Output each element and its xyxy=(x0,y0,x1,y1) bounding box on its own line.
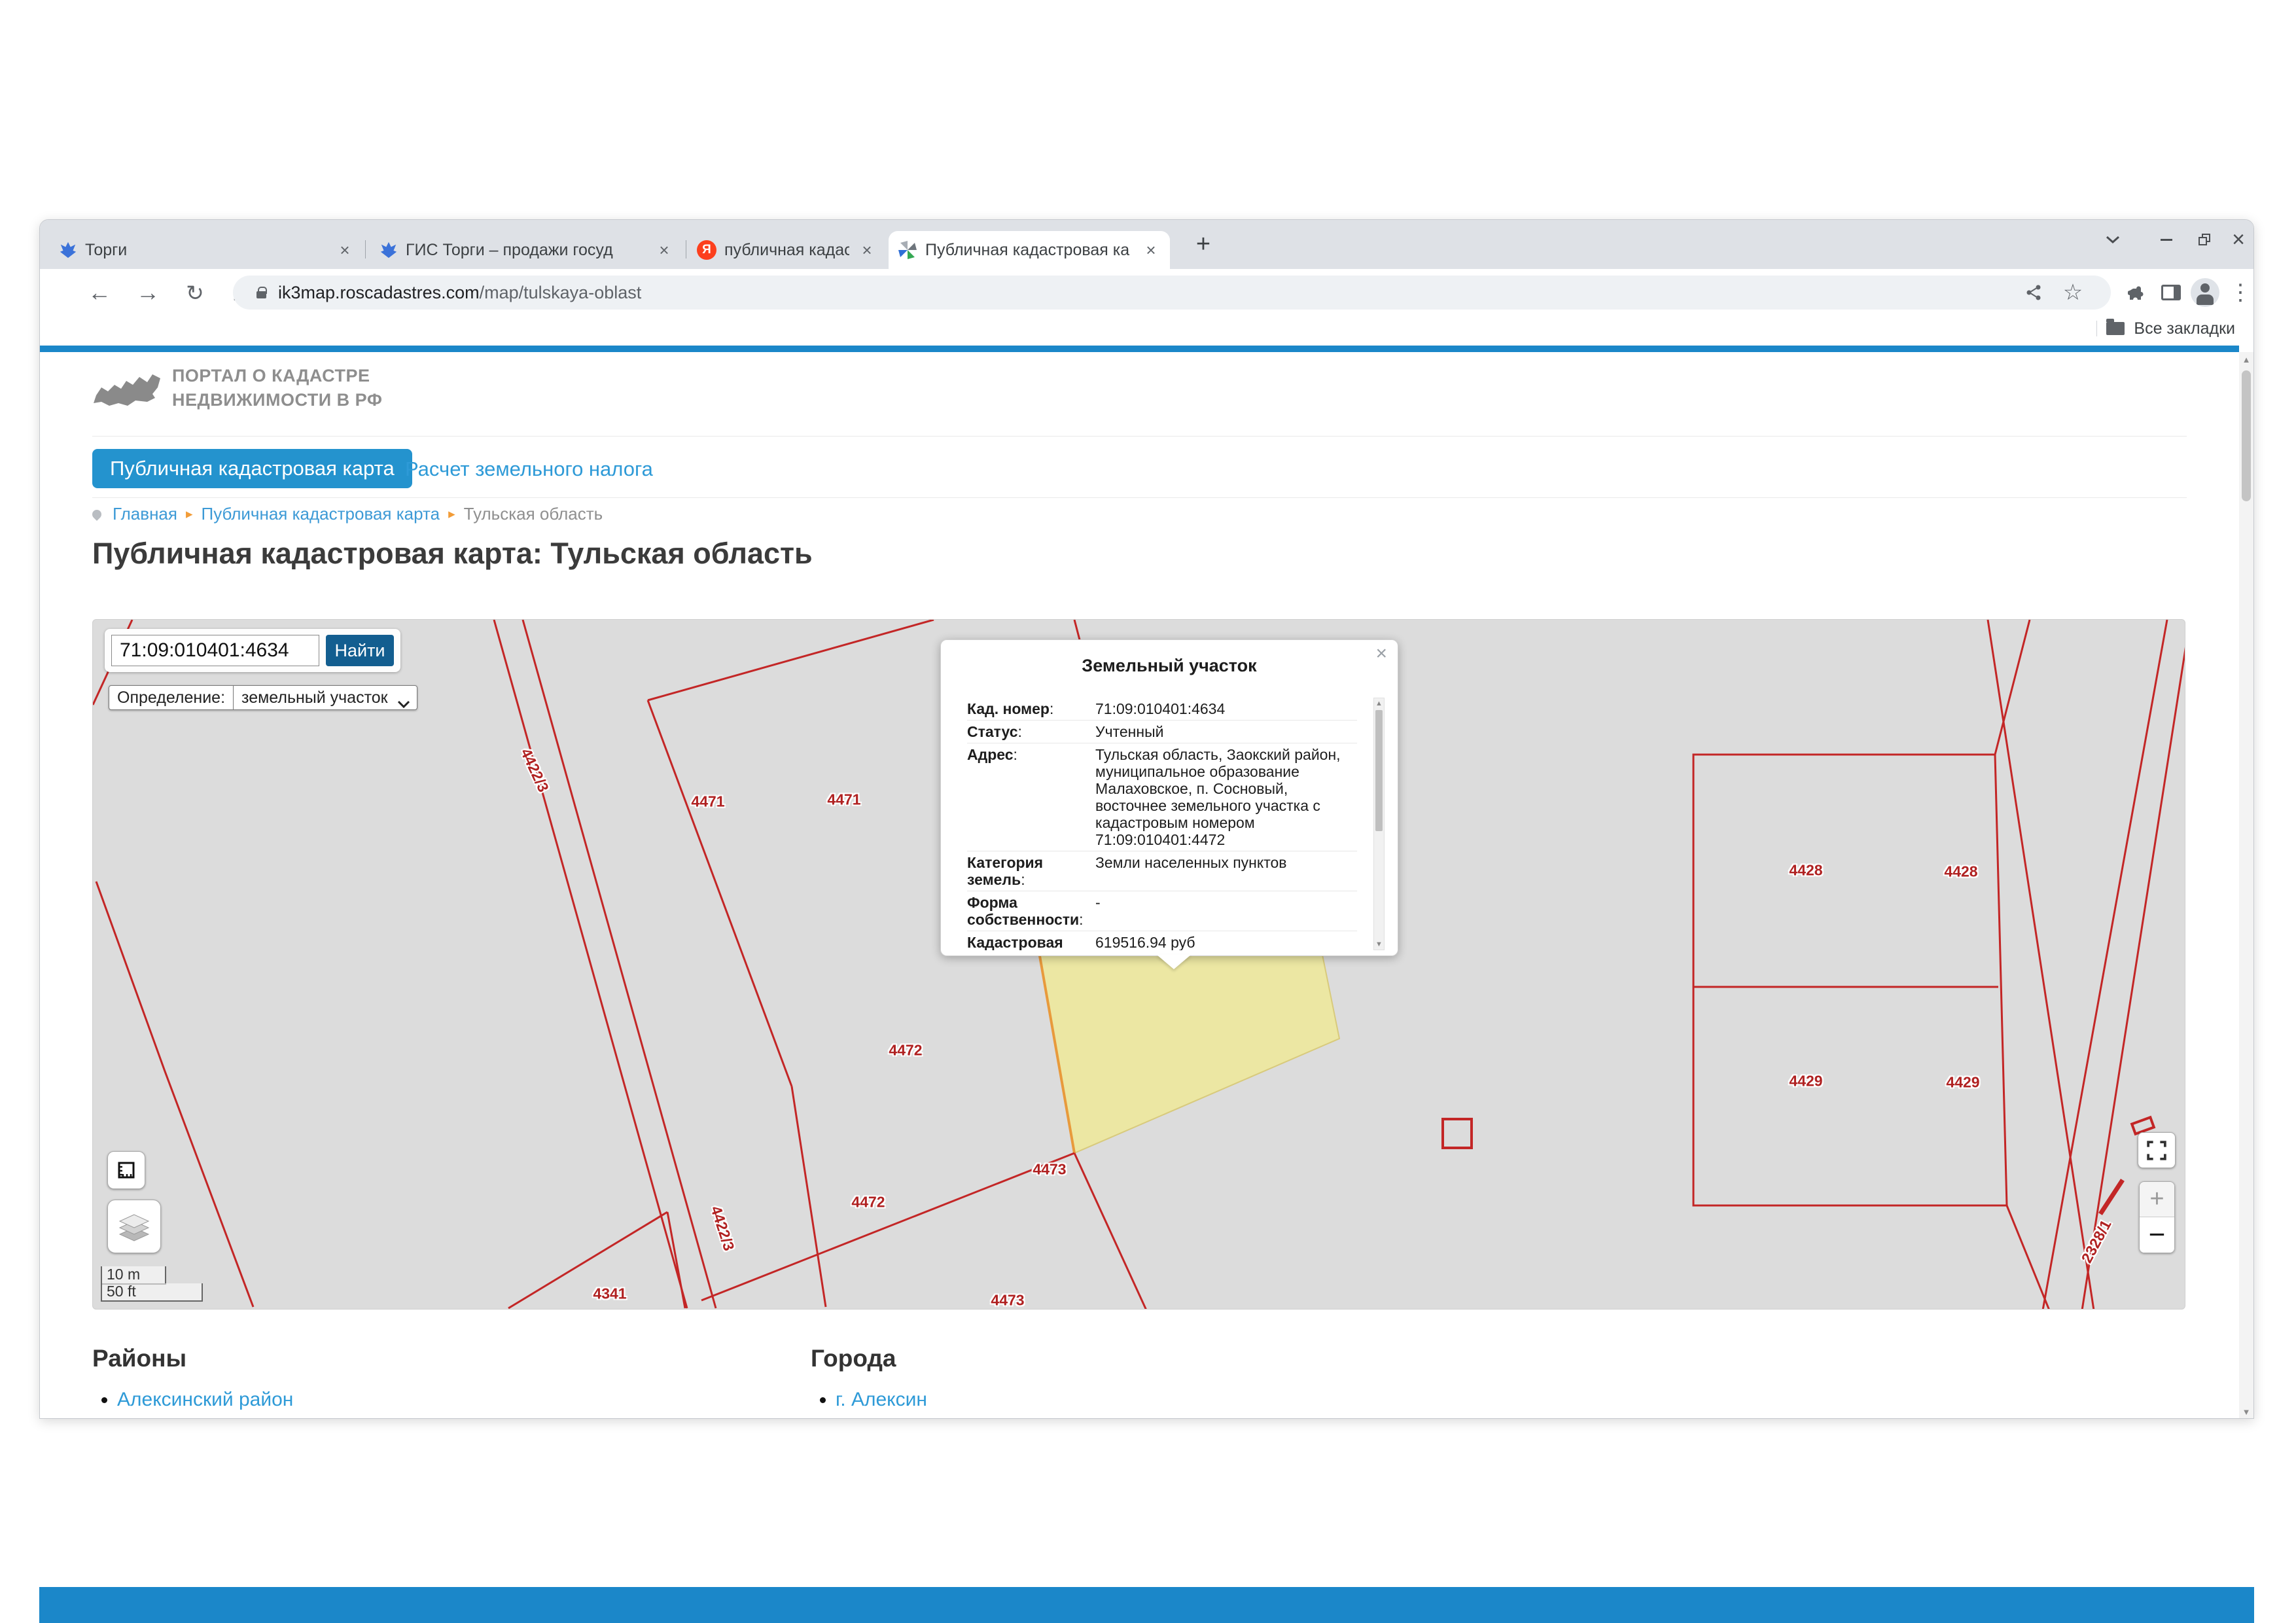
popup-row: Кад. номер 71:09:010401:4634 xyxy=(967,698,1357,721)
cadastral-number-input[interactable] xyxy=(111,635,319,666)
bottom-blue-bar xyxy=(39,1587,2254,1623)
breadcrumb-home[interactable]: Главная xyxy=(113,504,177,524)
address-bar[interactable]: ik3map.roscadastres.com/map/tulskaya-obl… xyxy=(233,276,2111,310)
zoom-in-button[interactable]: + xyxy=(2140,1182,2174,1217)
districts-section: Районы Алексинский район Арсеньевский ра… xyxy=(92,1345,304,1419)
tab-gis-torgi[interactable]: ГИС Торги – продажи госуд × xyxy=(370,231,683,269)
tab-separator xyxy=(686,240,686,259)
list-item: г. Богородицк xyxy=(836,1417,957,1419)
parcel-label: 4341 xyxy=(593,1285,626,1303)
scale-metric: 10 m xyxy=(101,1266,166,1285)
popup-title: Земельный участок xyxy=(941,656,1398,676)
districts-title: Районы xyxy=(92,1345,304,1372)
scroll-up-icon: ▲ xyxy=(1374,700,1384,707)
popup-row: Категория земель Земли населенных пункто… xyxy=(967,851,1357,891)
district-link[interactable]: Алексинский район xyxy=(117,1389,293,1410)
list-item: Арсеньевский район xyxy=(117,1417,304,1419)
parcel-label: 4428 xyxy=(1789,862,1822,880)
window-minimize-button[interactable] xyxy=(2153,226,2180,253)
popup-row: Кадастровая стоимость 619516.94 руб xyxy=(967,931,1357,950)
parcel-label: 4473 xyxy=(991,1292,1024,1310)
bookmarks-bar: Все закладки xyxy=(40,316,2253,341)
parcel-label: 4429 xyxy=(1789,1073,1822,1090)
browser-menu-dots-icon[interactable]: ⋮ xyxy=(2224,276,2254,310)
nav-link-land-tax[interactable]: Расчет земельного налога xyxy=(405,457,653,481)
popup-row: Форма собственности - xyxy=(967,891,1357,931)
scroll-down-icon: ▼ xyxy=(1374,940,1384,948)
site-logo-text: ПОРТАЛ О КАДАСТРЕ НЕДВИЖИМОСТИ В РФ xyxy=(172,364,382,412)
lock-icon xyxy=(256,291,266,298)
map-scale-bar: 10 m 50 ft xyxy=(101,1266,203,1302)
tab-separator xyxy=(365,240,366,259)
divider xyxy=(2096,321,2097,336)
breadcrumb: Главная ▸ Публичная кадастровая карта ▸ … xyxy=(92,504,603,524)
page-viewport: ПОРТАЛ О КАДАСТРЕ НЕДВИЖИМОСТИ В РФ Публ… xyxy=(40,352,2254,1419)
gerb-favicon-icon xyxy=(59,241,77,259)
bookmarks-folder-icon xyxy=(2106,322,2125,335)
yandex-favicon-icon: Я xyxy=(697,240,716,260)
find-button[interactable]: Найти xyxy=(326,635,394,666)
all-bookmarks-button[interactable]: Все закладки xyxy=(2134,319,2235,338)
tab-yandex-search[interactable]: Я публичная кадастровая ка × xyxy=(688,231,886,269)
list-item: г. Алексин xyxy=(836,1387,957,1413)
breadcrumb-cadastre-map[interactable]: Публичная кадастровая карта xyxy=(202,504,440,524)
window-restore-button[interactable] xyxy=(2191,226,2217,253)
popup-row: Адрес Тульская область, Заокский район, … xyxy=(967,743,1357,851)
profile-avatar[interactable] xyxy=(2189,276,2221,310)
window-menu-chevron-icon[interactable] xyxy=(2100,226,2126,253)
scroll-up-icon: ▲ xyxy=(2239,355,2253,365)
tab-torgi[interactable]: Торги × xyxy=(50,231,364,269)
tab-close-icon[interactable]: × xyxy=(857,240,877,260)
parcel-label: 4428 xyxy=(1944,863,1977,881)
parcel-label: 4472 xyxy=(889,1042,922,1060)
tab-title: публичная кадастровая ка xyxy=(724,241,849,260)
zoom-control: + − xyxy=(2139,1181,2175,1253)
chevron-down-icon xyxy=(397,694,410,713)
zoom-out-button[interactable]: − xyxy=(2140,1217,2174,1253)
page-scrollbar[interactable]: ▲ ▼ xyxy=(2239,352,2253,1419)
popup-content[interactable]: Кад. номер 71:09:010401:4634 Статус Учте… xyxy=(967,698,1357,950)
scroll-thumb xyxy=(2242,370,2251,501)
tab-strip: Торги × ГИС Торги – продажи госуд × Я пу… xyxy=(40,220,2253,269)
parcel-label: 4471 xyxy=(691,793,724,811)
tab-title: Публичная кадастровая ка xyxy=(925,241,1133,260)
back-icon[interactable]: ← xyxy=(83,269,116,316)
url-text: ik3map.roscadastres.com/map/tulskaya-obl… xyxy=(278,283,641,303)
nav-tab-cadastre-map[interactable]: Публичная кадастровая карта xyxy=(92,449,412,488)
browser-window: Торги × ГИС Торги – продажи госуд × Я пу… xyxy=(39,219,2254,1419)
popup-tail xyxy=(1157,955,1191,969)
gerb-favicon-icon xyxy=(380,241,398,259)
layers-button[interactable] xyxy=(107,1200,161,1253)
tab-title: ГИС Торги – продажи госуд xyxy=(406,241,646,260)
rosreestr-favicon-icon xyxy=(898,240,917,260)
measure-tool-button[interactable] xyxy=(107,1151,145,1189)
definition-select[interactable]: земельный участок xyxy=(233,686,417,709)
location-pin-icon xyxy=(90,508,103,521)
browser-toolbar: ← → ↻ ⌂ ik3map.roscadastres.com/map/tuls… xyxy=(40,269,2253,316)
divider xyxy=(92,497,2187,498)
site-top-accent-bar xyxy=(40,346,2239,352)
side-panel-icon[interactable] xyxy=(2155,276,2187,310)
share-icon[interactable] xyxy=(2019,276,2048,310)
tab-close-icon[interactable]: × xyxy=(335,240,355,260)
definition-label: Определение: xyxy=(109,686,233,709)
list-item: Алексинский район xyxy=(117,1387,304,1413)
tab-close-icon[interactable]: × xyxy=(654,240,674,260)
city-link[interactable]: г. Алексин xyxy=(836,1389,927,1410)
divider xyxy=(92,436,2187,437)
tab-close-icon[interactable]: × xyxy=(1141,240,1161,260)
window-close-button[interactable]: × xyxy=(2225,226,2252,253)
breadcrumb-arrow-icon: ▸ xyxy=(186,506,193,522)
new-tab-button[interactable]: + xyxy=(1188,229,1218,259)
bookmark-star-icon[interactable]: ☆ xyxy=(2058,276,2087,310)
parcel-label: 4473 xyxy=(1033,1161,1066,1179)
cadastral-map[interactable]: 4422/3 4471 4471 4472 4472 4473 4473 434… xyxy=(92,619,2185,1310)
scroll-down-icon: ▼ xyxy=(2239,1407,2253,1417)
scroll-thumb xyxy=(1375,710,1383,831)
cities-section: Города г. Алексин г. Богородицк xyxy=(811,1345,957,1419)
breadcrumb-arrow-icon: ▸ xyxy=(448,506,455,522)
popup-scrollbar[interactable]: ▲ ▼ xyxy=(1373,698,1385,950)
page-title: Публичная кадастровая карта: Тульская об… xyxy=(92,537,813,571)
cities-title: Города xyxy=(811,1345,957,1372)
parcel-info-popup: × Земельный участок Кад. номер 71:09:010… xyxy=(940,639,1398,956)
scale-imperial: 50 ft xyxy=(101,1283,203,1302)
reload-icon[interactable]: ↻ xyxy=(179,269,211,316)
russia-map-logo xyxy=(92,365,163,416)
breadcrumb-current: Тульская область xyxy=(464,504,603,524)
fullscreen-button[interactable] xyxy=(2138,1132,2176,1168)
extensions-puzzle-icon[interactable] xyxy=(2121,276,2153,310)
parcel-label: 4429 xyxy=(1946,1074,1979,1092)
parcel-label: 4472 xyxy=(851,1194,885,1211)
tab-cadastre-map-active[interactable]: Публичная кадастровая ка × xyxy=(889,231,1170,269)
definition-filter: Определение: земельный участок xyxy=(109,685,417,710)
popup-row: Статус Учтенный xyxy=(967,721,1357,743)
parcel-label: 4471 xyxy=(827,791,860,809)
tab-title: Торги xyxy=(85,241,327,260)
forward-icon[interactable]: → xyxy=(132,269,164,316)
map-search-panel: Найти xyxy=(105,629,400,672)
